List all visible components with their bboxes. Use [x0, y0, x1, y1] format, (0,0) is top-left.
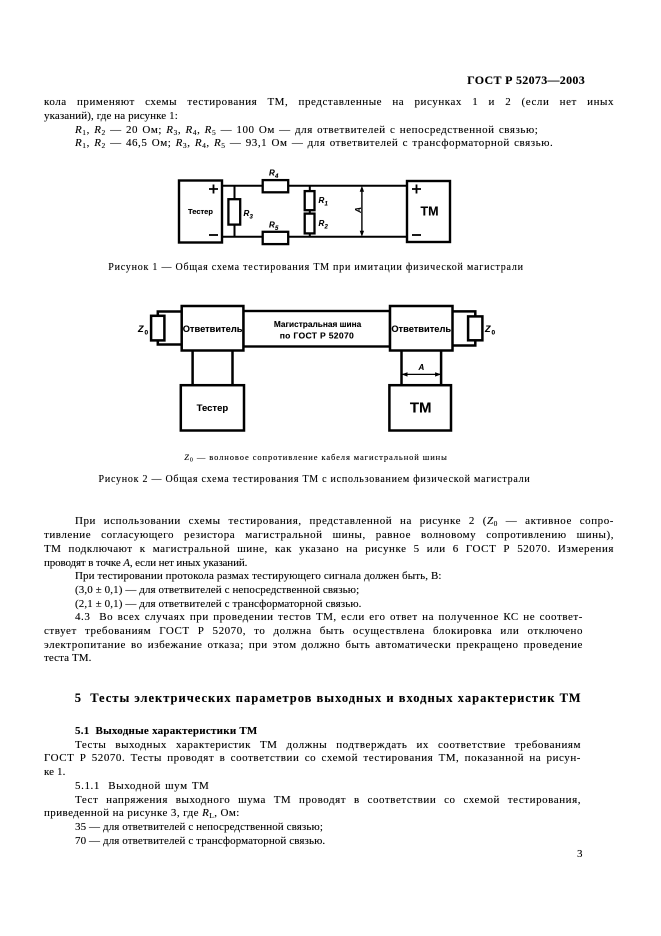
svg-text:0: 0 — [492, 330, 496, 337]
svg-text:Магистральная шина: Магистральная шина — [274, 319, 362, 329]
svg-text:по ГОСТ Р 52070: по ГОСТ Р 52070 — [280, 331, 354, 341]
svg-text:Z: Z — [484, 324, 491, 334]
svg-text:Тестер: Тестер — [188, 207, 213, 216]
svg-text:0: 0 — [145, 330, 149, 337]
svg-text:1: 1 — [325, 202, 329, 208]
svg-text:2: 2 — [324, 225, 329, 231]
svg-text:4: 4 — [274, 174, 279, 180]
svg-text:ТМ: ТМ — [420, 205, 438, 219]
svg-text:A: A — [354, 207, 363, 214]
svg-text:А: А — [418, 363, 425, 372]
svg-text:Z: Z — [137, 324, 144, 334]
svg-text:Ответвитель: Ответвитель — [391, 324, 451, 334]
svg-text:Тестер: Тестер — [197, 403, 229, 414]
svg-text:Ответвитель: Ответвитель — [183, 324, 243, 334]
svg-text:3: 3 — [250, 215, 254, 221]
svg-text:ТМ: ТМ — [410, 400, 432, 417]
